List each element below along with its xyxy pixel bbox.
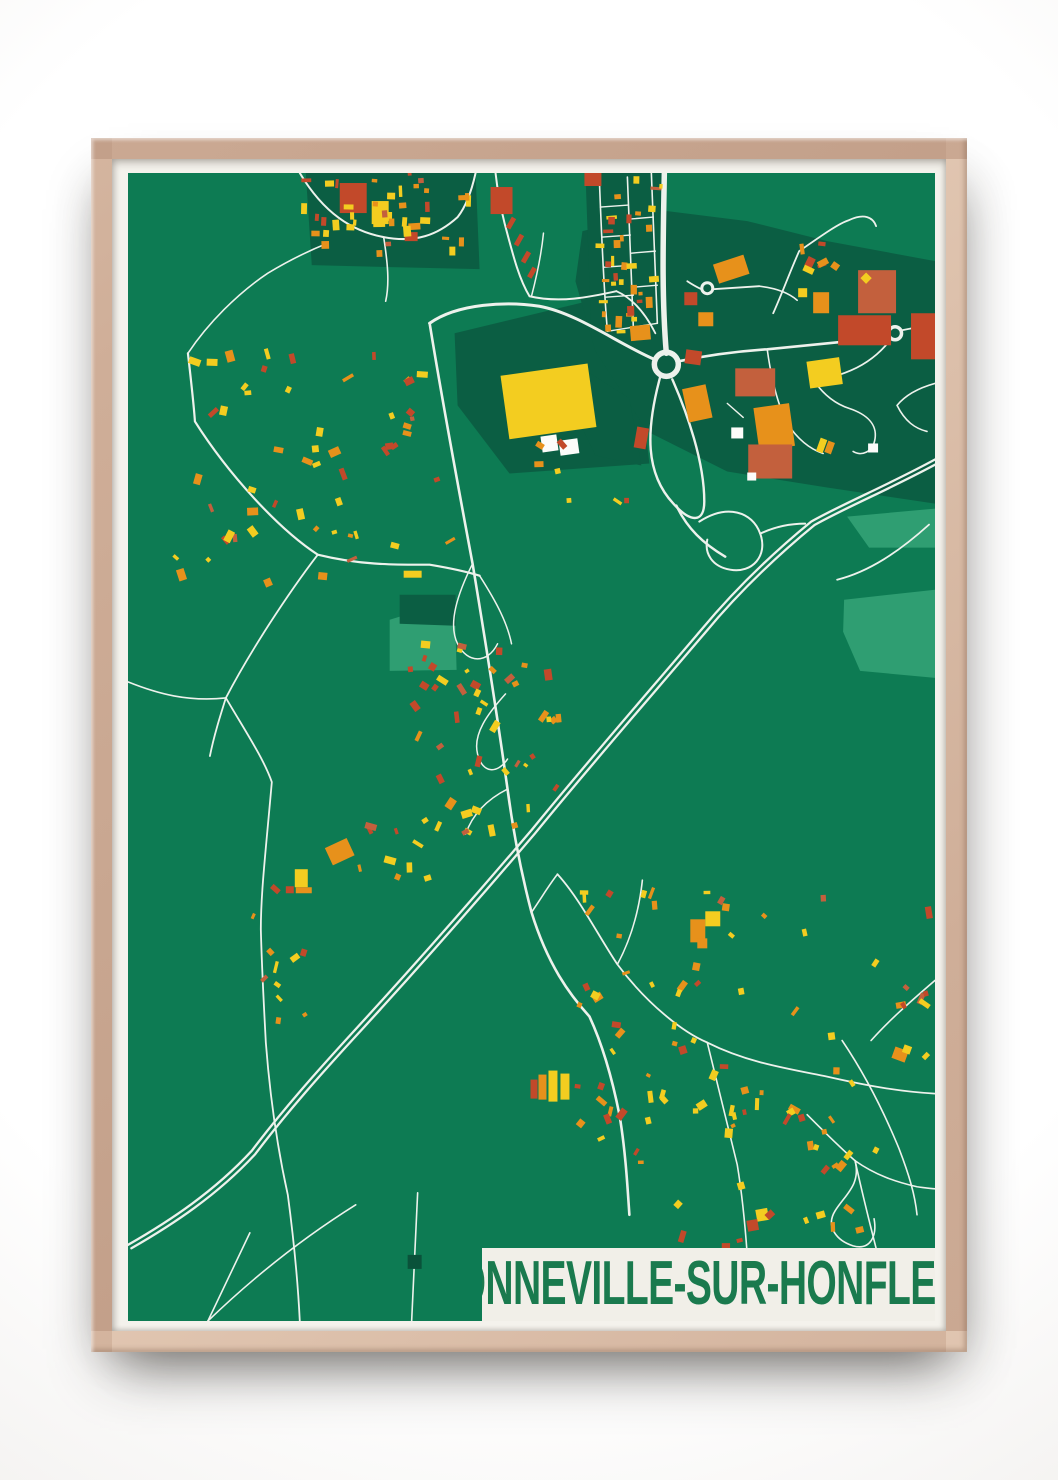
hamlet-building	[566, 498, 571, 503]
hamlet-building	[605, 261, 611, 267]
hamlet-building	[693, 1108, 698, 1113]
hamlet-building	[207, 359, 218, 366]
hamlet-building	[738, 988, 745, 995]
hamlet-building	[818, 241, 826, 246]
hamlet-building	[755, 1098, 759, 1110]
building	[838, 315, 891, 345]
hamlet-building	[399, 202, 407, 208]
building	[911, 313, 935, 359]
hamlet-building	[821, 895, 827, 902]
hamlet-building	[638, 1160, 644, 1164]
hamlet-building	[638, 292, 642, 296]
hamlet-building	[614, 194, 621, 199]
hamlet-building	[408, 173, 412, 176]
building	[404, 571, 422, 578]
building	[698, 312, 713, 326]
frame-matte: GONNEVILLE-SUR-HONFLEUR	[112, 159, 946, 1331]
hamlet-building	[385, 242, 391, 247]
hamlet-building	[626, 214, 631, 223]
hamlet-building	[614, 240, 621, 248]
hamlet-building	[449, 247, 455, 256]
hamlet-building	[631, 285, 637, 295]
building	[286, 886, 294, 893]
hamlet-building	[582, 893, 586, 903]
hamlet-building	[652, 901, 658, 910]
building	[295, 869, 308, 887]
hamlet-building	[555, 714, 561, 723]
building	[584, 173, 601, 186]
hamlet-building	[615, 316, 622, 328]
building	[684, 292, 697, 305]
building	[560, 1074, 569, 1100]
hamlet-building	[631, 317, 637, 322]
building	[813, 292, 829, 313]
building	[684, 349, 702, 365]
hamlet-building	[635, 211, 641, 215]
hamlet-building	[350, 212, 354, 219]
hamlet-building	[624, 498, 629, 503]
building	[753, 403, 795, 451]
hamlet-building	[602, 279, 609, 282]
hamlet-building	[611, 256, 614, 266]
hamlet-building	[613, 273, 618, 281]
hamlet-building	[626, 263, 636, 269]
hamlet-building	[344, 204, 354, 209]
hamlet-building	[425, 202, 430, 212]
hamlet-building	[417, 371, 428, 378]
hamlet-building	[372, 179, 378, 183]
poster-frame: GONNEVILLE-SUR-HONFLEUR	[91, 138, 967, 1352]
hamlet-building	[611, 281, 616, 285]
hamlet-building	[496, 647, 503, 655]
building	[548, 1071, 557, 1102]
hamlet-building	[616, 933, 622, 938]
hamlet-building	[704, 891, 711, 894]
hamlet-building	[373, 201, 378, 206]
hamlet-building	[633, 176, 639, 184]
building	[501, 364, 597, 440]
hamlet-building	[403, 226, 411, 237]
hamlet-building	[637, 299, 643, 303]
hamlet-building	[828, 1032, 836, 1040]
hamlet-building	[332, 219, 339, 230]
building	[538, 1075, 546, 1100]
hamlet-building	[534, 461, 543, 467]
hamlet-building	[646, 225, 652, 232]
hamlet-building	[421, 641, 431, 649]
hamlet-building	[418, 178, 424, 183]
hamlet-building	[247, 507, 258, 515]
hamlet-building	[720, 1064, 729, 1069]
hamlet-building	[406, 862, 412, 872]
hamlet-building	[420, 217, 430, 224]
hamlet-building	[646, 297, 653, 308]
hamlet-building	[574, 1084, 580, 1089]
hamlet-building	[399, 185, 403, 197]
hamlet-building	[389, 219, 394, 227]
hamlet-building	[659, 184, 663, 189]
hamlet-building	[608, 217, 615, 225]
hamlet-building	[372, 352, 376, 360]
hamlet-building	[312, 445, 319, 453]
hamlet-building	[546, 716, 551, 722]
hamlet-building	[620, 235, 624, 242]
hamlet-building	[382, 210, 388, 217]
hamlet-building	[649, 276, 659, 283]
hamlet-building	[442, 237, 449, 241]
hamlet-building	[311, 231, 319, 237]
city-title: GONNEVILLE-SUR-HONFLEUR	[482, 1253, 935, 1315]
hamlet-building	[760, 1090, 764, 1095]
hamlet-building	[544, 669, 553, 681]
hamlet-building	[521, 662, 528, 668]
building	[747, 473, 756, 481]
hamlet-building	[373, 222, 385, 227]
hamlet-building	[244, 390, 251, 395]
map-poster: GONNEVILLE-SUR-HONFLEUR	[128, 173, 935, 1321]
hamlet-building	[692, 962, 701, 971]
hamlet-building	[318, 572, 328, 580]
hamlet-building	[619, 279, 624, 285]
hamlet-building	[321, 217, 327, 226]
hamlet-building	[410, 416, 415, 421]
land-parcel-dark	[400, 595, 456, 626]
hamlet-building	[459, 237, 464, 246]
building	[540, 434, 558, 452]
hamlet-building	[627, 306, 634, 316]
building	[296, 887, 312, 893]
hamlet-building	[821, 1129, 827, 1135]
hamlet-building	[617, 330, 626, 334]
hamlet-building	[346, 224, 354, 230]
hamlet-building	[605, 325, 611, 332]
hamlet-building	[833, 1067, 839, 1074]
building	[731, 427, 743, 438]
hamlet-building	[458, 195, 466, 200]
hamlet-building	[376, 250, 382, 257]
building	[531, 1080, 538, 1099]
hamlet-building	[315, 214, 319, 221]
hamlet-building	[724, 1128, 733, 1138]
building	[735, 368, 775, 396]
hamlet-building	[325, 180, 334, 186]
building	[697, 938, 707, 948]
hamlet-building	[387, 193, 395, 200]
hamlet-building	[595, 243, 604, 248]
hamlet-building	[413, 184, 419, 189]
hamlet-building	[637, 332, 645, 339]
hamlet-building	[526, 804, 530, 812]
hamlet-building	[424, 188, 429, 193]
hamlet-building	[408, 666, 413, 672]
hamlet-building	[599, 300, 608, 303]
hamlet-building	[603, 229, 613, 233]
hamlet-building	[402, 217, 408, 227]
building	[746, 1219, 759, 1232]
building	[798, 288, 807, 297]
hamlet-building	[648, 205, 656, 212]
hamlet-building	[301, 178, 311, 182]
hamlet-building	[321, 241, 329, 249]
hamlet-building	[316, 427, 324, 437]
hamlet-building	[831, 1222, 836, 1232]
hamlet-building	[275, 1017, 281, 1024]
building	[491, 187, 513, 214]
building	[806, 357, 842, 388]
building	[868, 443, 878, 452]
title-band: GONNEVILLE-SUR-HONFLEUR	[482, 1248, 935, 1321]
building	[408, 1255, 422, 1269]
city-map-canvas	[128, 173, 935, 1321]
hamlet-building	[722, 903, 730, 911]
hamlet-building	[602, 311, 606, 317]
photo-scene: GONNEVILLE-SUR-HONFLEUR	[0, 0, 1058, 1480]
building	[705, 911, 720, 926]
hamlet-building	[301, 203, 307, 214]
hamlet-building	[323, 230, 329, 237]
